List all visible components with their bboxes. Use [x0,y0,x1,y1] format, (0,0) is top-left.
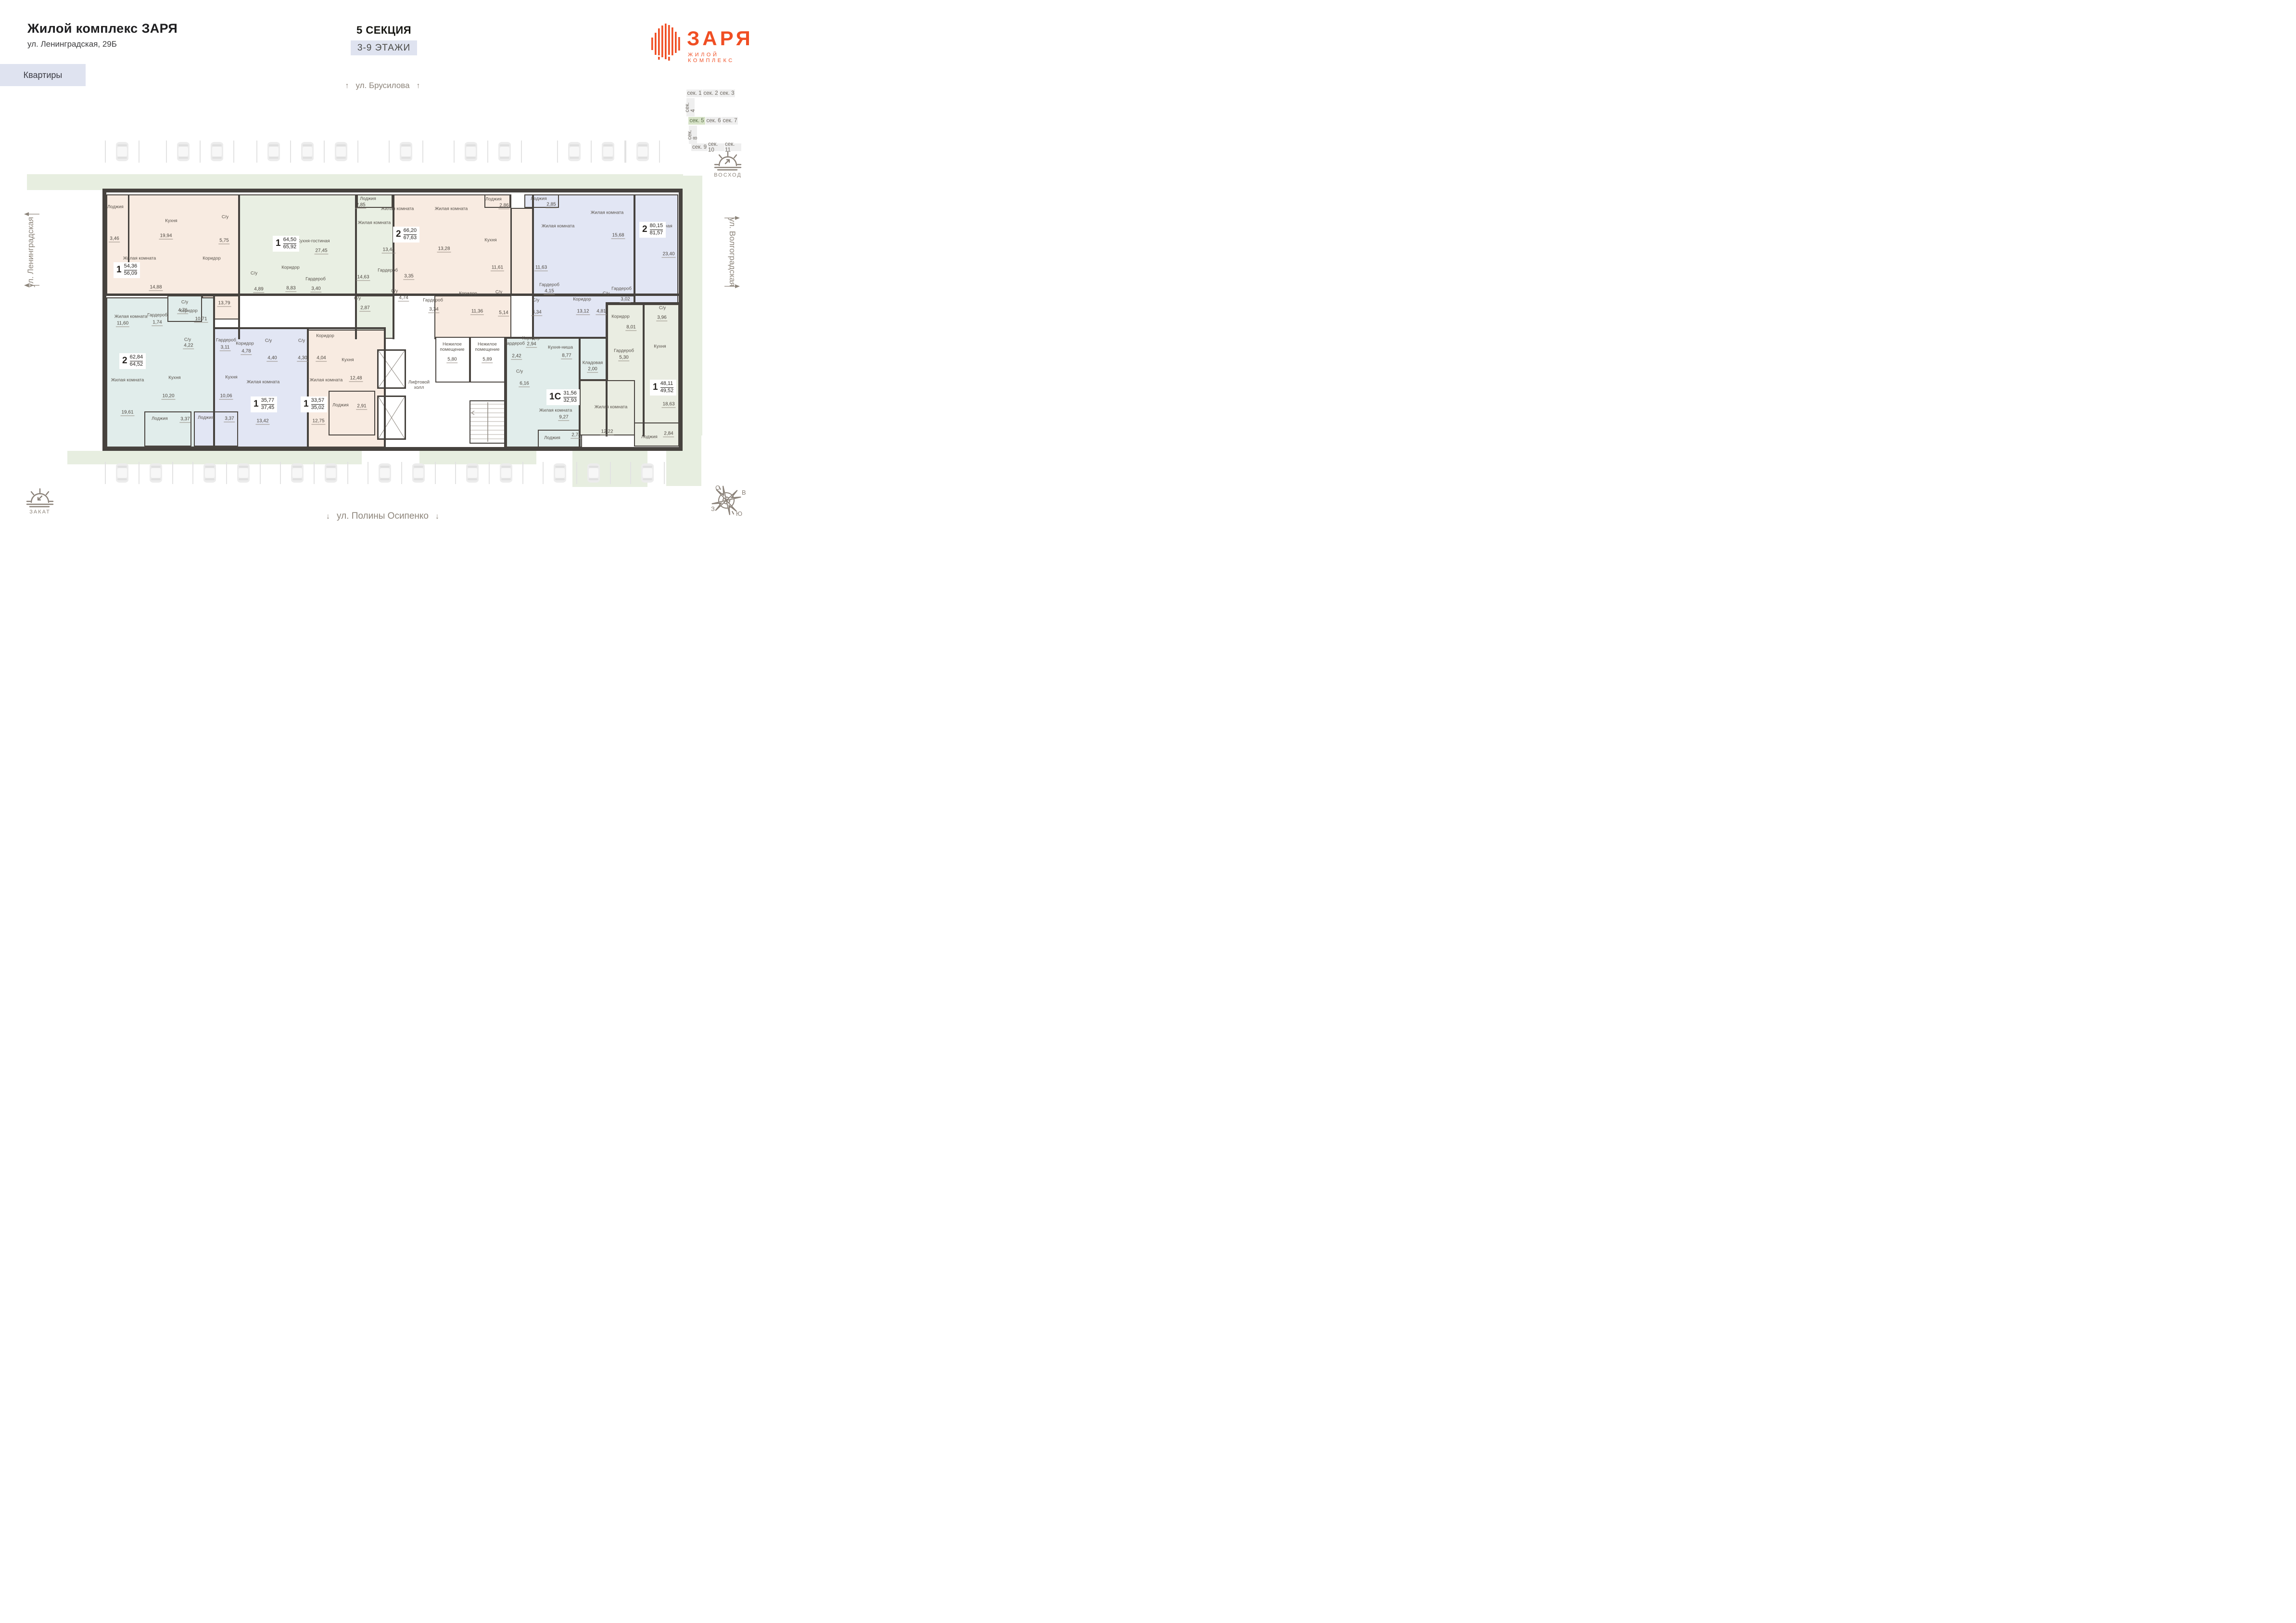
room-area: 8,83 [285,286,296,292]
room-area: 4,04 [316,356,327,362]
room-area: 13,42 [255,419,269,425]
room-label: Жилая комната [358,220,391,226]
room-label: С/у [251,271,257,276]
room-area: 11,61 [491,265,504,271]
section-nav-label: сек. 1 [687,90,702,96]
room-label: Коридор [573,297,591,302]
section-nav-label: сек. 8 [687,130,699,140]
floors-range-badge: 3-9 ЭТАЖИ [351,40,417,55]
parking-group [557,141,625,163]
section-nav-label: сек. 5 [690,118,704,124]
parking-group [192,462,261,484]
room-area: 2,94 [526,342,537,348]
parking-stall-car-icon [455,462,489,484]
parking-group [166,141,234,163]
apt-2-badge[interactable]: 164,5065,92 [273,236,299,252]
wall-segment [504,337,608,339]
room-label: С/у [181,300,188,305]
wall-segment [504,337,506,447]
room-label: Жилая комната [435,206,468,212]
parking-stall-car-icon [166,141,200,163]
parking-stall-car-icon [290,141,324,163]
parking-stall-car-icon [591,141,625,163]
parking-stall-car-icon [625,141,660,163]
room-label: Лоджия [544,435,560,441]
room-label: Лоджия [152,416,168,422]
street-left-arrow-icon [23,283,40,288]
zarya-logo-icon [650,23,681,64]
apt-5-badge[interactable]: 262,8464,52 [119,353,146,369]
compass-south-label: Ю [736,510,742,517]
room-area: 15,68 [611,233,625,239]
parking-stall-car-icon [543,462,576,484]
room-label: Жилая комната [542,224,575,229]
room-label: Кухня [165,218,177,224]
parking-stall-car-icon [401,462,436,484]
section-nav-item-4[interactable]: сек. 4 [686,98,695,116]
room-label: Жилая комната [381,206,414,212]
room-area: 3,37 [179,417,190,423]
elevator-shaft-icon [377,396,406,440]
area-total: 56,09 [124,270,138,277]
wall-segment [238,194,240,339]
parking-stall-car-icon [192,462,226,484]
wall-segment [393,194,394,339]
room-area: 13,44 [381,247,395,254]
room-area: 23,40 [661,252,675,258]
area-total: 81,57 [650,230,663,237]
area-living: 54,36 [124,263,138,270]
logo-tagline: ЖИЛОЙ КОМПЛЕКС [688,52,765,64]
room-area: 13,12 [576,309,590,315]
room-area: 2,74 [571,433,582,439]
room-label: Лоджия [641,435,658,440]
room-area: 5,30 [618,355,629,361]
compass-west-label: З [711,505,715,512]
wall-segment [355,194,357,339]
room-label: Лоджия [107,204,124,210]
room-label: Гардероб [216,338,236,343]
room-label: Коридор [179,308,198,314]
room-label: С/у [516,369,523,374]
parking-stall-car-icon [368,462,401,484]
room-label: С/у [354,296,361,301]
arrow-up-icon: ↑ [410,82,427,90]
room-label: С/у [184,337,191,343]
room-label: Жилая комната [539,408,572,413]
apt-7-region[interactable] [329,391,375,435]
area-total: 49,52 [660,388,674,395]
room-area: 27,45 [314,248,328,255]
wall-segment [384,327,386,447]
parking-stall-car-icon [105,462,139,484]
room-area: 3,02 [620,297,631,303]
room-area: 18,63 [661,402,675,408]
parking-stall-car-icon [314,462,348,484]
section-nav-item-7[interactable]: сек. 7 [722,117,738,125]
room-label: Гардероб [505,341,525,346]
common-room-label: Нежилое помещение [472,342,503,352]
apt-4-badge[interactable]: 280,1581,57 [639,222,666,238]
room-label: Лоджия [360,196,376,202]
area-total: 32,93 [563,397,577,404]
landscaping-strip [683,176,702,435]
section-nav-item-5[interactable]: сек. 5 [688,117,705,125]
room-label: Кухня [654,344,666,349]
apt-3-badge[interactable]: 266,2067,63 [393,227,419,243]
compass-north-label: С [715,484,720,491]
room-label: Кухня-гостиная [297,239,330,244]
room-area: 4,22 [183,343,194,349]
section-nav-label: сек. 4 [685,102,697,112]
room-label: Кладовая [583,360,603,366]
room-label: Коридор [611,314,630,319]
area-living: 31,56 [563,390,577,397]
room-area: 3,46 [109,236,120,243]
common-room-area: 5,89 [482,357,493,363]
area-living: 80,15 [650,223,663,230]
room-label: Коридор [203,256,221,261]
parking-group [454,141,522,163]
room-area: 19,94 [159,233,173,240]
room-label: Кухня [484,238,496,243]
room-area: 2,86 [498,203,509,209]
room-area: 10,06 [219,394,233,400]
room-label: Коридор [316,333,334,339]
room-area: 2,87 [359,306,370,312]
room-label: Коридор [459,291,477,296]
parking-stall-car-icon [630,462,665,484]
apt-3-region[interactable] [510,208,534,296]
parking-group [368,462,436,484]
parking-stall-car-icon [576,462,611,484]
room-label: Лоджия [332,403,349,408]
parking-stall-car-icon [200,141,234,163]
section-nav-item-9[interactable]: сек. 9 [691,143,708,151]
room-area: 4,40 [266,356,278,362]
rooms-count: 1С [549,392,561,402]
room-label: Гардероб [147,313,167,318]
room-area: 5,14 [498,310,509,317]
wall-segment [634,194,635,305]
room-label: Кухня [225,375,237,380]
compass-east-label: В [742,489,746,496]
wall-segment [606,302,679,304]
wall-segment [643,303,645,436]
room-area: 14,88 [149,285,163,291]
room-label: Жилая комната [123,256,156,261]
wall-segment [606,303,608,436]
parking-stall-car-icon [487,141,522,163]
room-area: 4,15 [544,289,555,295]
wall-segment [213,327,386,329]
room-label: Кухня-ниша [548,345,573,350]
room-label: Жилая комната [595,405,628,410]
area-total: 64,52 [130,361,143,368]
section-nav-label: сек. 6 [707,118,721,124]
section-nav-item-1[interactable]: сек. 1 [686,89,702,97]
area-living: 33,57 [311,397,325,405]
room-label: Лоджия [198,415,214,421]
parking-stall-car-icon [256,141,290,163]
street-left-label: ул. Ленинградская [26,217,36,287]
area-total: 35,02 [311,405,325,411]
parking-group [455,462,523,484]
room-label: С/у [533,298,539,303]
arrow-down-icon: ↓ [319,512,337,521]
arrow-down-icon: ↓ [429,512,446,521]
elevator-shaft-icon [377,349,406,389]
parking-group [389,141,423,163]
room-area: 2,85 [545,202,557,208]
room-area: 4,81 [596,309,607,315]
parking-group [630,462,665,484]
room-area: 5,75 [218,238,229,244]
wall-segment [213,295,215,447]
section-nav-item-6[interactable]: сек. 6 [706,117,722,125]
room-label: Коридор [281,265,300,270]
room-label: С/у [391,289,398,294]
area-living: 48,11 [660,381,674,388]
wall-segment [532,194,534,339]
room-area: 1,74 [152,320,163,326]
apt-9-badge[interactable]: 148,1149,52 [650,380,676,396]
room-area: 11,36 [470,309,484,315]
room-label: Гардероб [305,277,326,282]
room-area: 14,63 [356,275,370,281]
parking-stall-car-icon [389,141,423,163]
section-nav-label: сек. 7 [723,118,737,124]
arrow-up-icon: ↑ [338,82,355,90]
sunset-label: ЗАКАТ [25,509,55,515]
section-nav-item-8[interactable]: сек. 8 [689,126,697,144]
sunset-icon [25,487,55,508]
wall-segment [106,294,679,296]
room-area: 9,27 [558,415,569,421]
area-living: 35,77 [261,397,275,405]
section-nav-label: сек. 3 [720,90,735,96]
apt-1-region[interactable] [106,194,239,295]
parking-stall-car-icon [454,141,487,163]
street-top-label: ↑ул. Брусилова↑ [0,81,765,90]
common-room-label: Лифтовой холл [404,380,434,390]
room-label: Гардероб [423,298,443,303]
room-area: 8,77 [561,353,572,359]
parking-stall-car-icon [557,141,591,163]
rooms-count: 2 [122,356,127,366]
room-area: 3,11 [220,345,231,351]
apt-7-badge[interactable]: 133,5735,02 [301,396,327,412]
room-area: 4,89 [253,287,264,293]
street-right-arrow-icon [723,216,741,220]
room-area: 4,74 [398,295,409,302]
parking-stall-car-icon [324,141,358,163]
room-area: 2,85 [355,203,366,209]
apt-4-region[interactable] [533,194,634,295]
parking-group [256,141,358,163]
street-right-label: ул. Волгоградская [727,217,737,286]
apt-4-region[interactable] [634,194,678,303]
room-label: Жилая комната [247,380,280,385]
room-label: Гардероб [611,286,632,292]
parking-stall-car-icon [105,141,140,163]
parking-stall-car-icon [226,462,261,484]
rooms-count: 1 [304,399,309,409]
apt-8-badge[interactable]: 1С31,5632,93 [546,389,580,405]
room-area: 6,16 [519,381,530,387]
room-label: Кухня [168,375,180,381]
room-area: 3,96 [656,315,667,321]
street-bottom-label: ↓ул. Полины Осипенко↓ [0,511,765,522]
room-label: С/у [265,338,272,344]
room-area: 3,37 [224,416,235,422]
room-area: 4,34 [531,310,542,316]
section-title: 5 СЕКЦИЯ [336,24,432,37]
room-label: С/у [603,291,609,296]
room-area: 8,01 [625,325,636,331]
room-label: Кухня [342,358,354,363]
parking-group [625,141,660,163]
room-label: Коридор [522,336,540,341]
room-area: 10,20 [161,394,175,400]
apt-6-badge[interactable]: 135,7737,45 [251,396,277,412]
room-area: 11,63 [534,265,548,271]
street-right-arrow-icon [723,284,741,289]
room-area: 13,28 [437,246,451,253]
parking-group [105,141,140,163]
room-area: 4,78 [241,349,252,355]
room-area: 3,34 [428,307,439,313]
complex-address: ул. Ленинградская, 29Б [27,39,117,49]
room-area: 3,40 [310,286,321,293]
wall-segment [307,327,309,447]
section-nav-label: сек. 9 [692,144,707,150]
room-label: Гардероб [378,268,398,273]
room-label: Лоджия [531,196,547,202]
parking-group [280,462,348,484]
section-nav-label: сек. 2 [704,90,718,96]
wall-segment [510,209,512,296]
parking-group [543,462,611,484]
logo-wordmark: ЗАРЯ [687,27,753,50]
landscaping-strip [27,174,683,190]
room-area: 3,35 [403,274,414,280]
staircase-icon [469,400,506,444]
rooms-count: 1 [653,382,658,393]
area-total: 67,63 [404,235,417,242]
parking-stall-car-icon [139,462,173,484]
room-area: 4,30 [297,356,308,362]
room-label: С/у [222,215,228,220]
parking-stall-car-icon [280,462,314,484]
room-area: 12,48 [349,376,363,382]
room-label: С/у [298,338,305,344]
rooms-count: 2 [396,229,401,240]
apt-1-badge[interactable]: 154,3656,09 [114,262,140,278]
room-area: 12,75 [311,419,325,425]
section-nav-item-3[interactable]: сек. 3 [719,89,735,97]
sunrise-icon [713,150,743,171]
sunrise-label: ВОСХОД [713,172,743,178]
room-area: 2,00 [587,367,598,373]
room-area: 19,61 [120,410,134,416]
rooms-count: 1 [276,238,281,249]
room-label: Лоджия [485,197,502,202]
floor-plan-page: Жилой комплекс ЗАРЯ ул. Ленинградская, 2… [0,0,765,541]
common-room-area: 5,80 [446,357,457,363]
common-room-label: Нежилое помещение [437,342,468,352]
room-label: Жилая комната [310,378,343,383]
room-label: С/у [495,290,502,295]
parking-group [105,462,173,484]
room-area: 11,60 [116,321,129,327]
area-total: 37,45 [261,405,275,411]
room-label: Жилая комната [114,314,148,319]
room-label: С/у [659,306,666,311]
area-living: 66,20 [404,228,417,235]
room-label: Жилая комната [591,210,624,216]
room-label: Жилая комната [111,378,144,383]
rooms-count: 2 [642,224,647,235]
room-label: Гардероб [614,348,634,354]
room-label: Гардероб [539,282,559,288]
page-title: Жилой комплекс ЗАРЯ [27,21,178,36]
apt-3-region[interactable] [434,295,511,339]
room-area: 10,71 [194,317,208,323]
rooms-count: 1 [254,399,259,409]
room-area: 2,91 [356,404,367,410]
area-total: 65,92 [283,244,297,251]
area-living: 62,84 [130,354,143,361]
room-area: 12,22 [600,429,614,435]
room-area: 2,42 [511,354,522,360]
rooms-count: 1 [116,265,122,275]
room-area: 13,79 [217,301,231,307]
section-nav-item-2[interactable]: сек. 2 [703,89,719,97]
street-left-arrow-icon [23,212,40,217]
room-area: 2,84 [663,431,674,437]
apt-8-region[interactable] [580,337,607,380]
area-living: 64,50 [283,237,297,244]
room-label: Коридор [236,341,254,346]
parking-stall-car-icon [489,462,523,484]
